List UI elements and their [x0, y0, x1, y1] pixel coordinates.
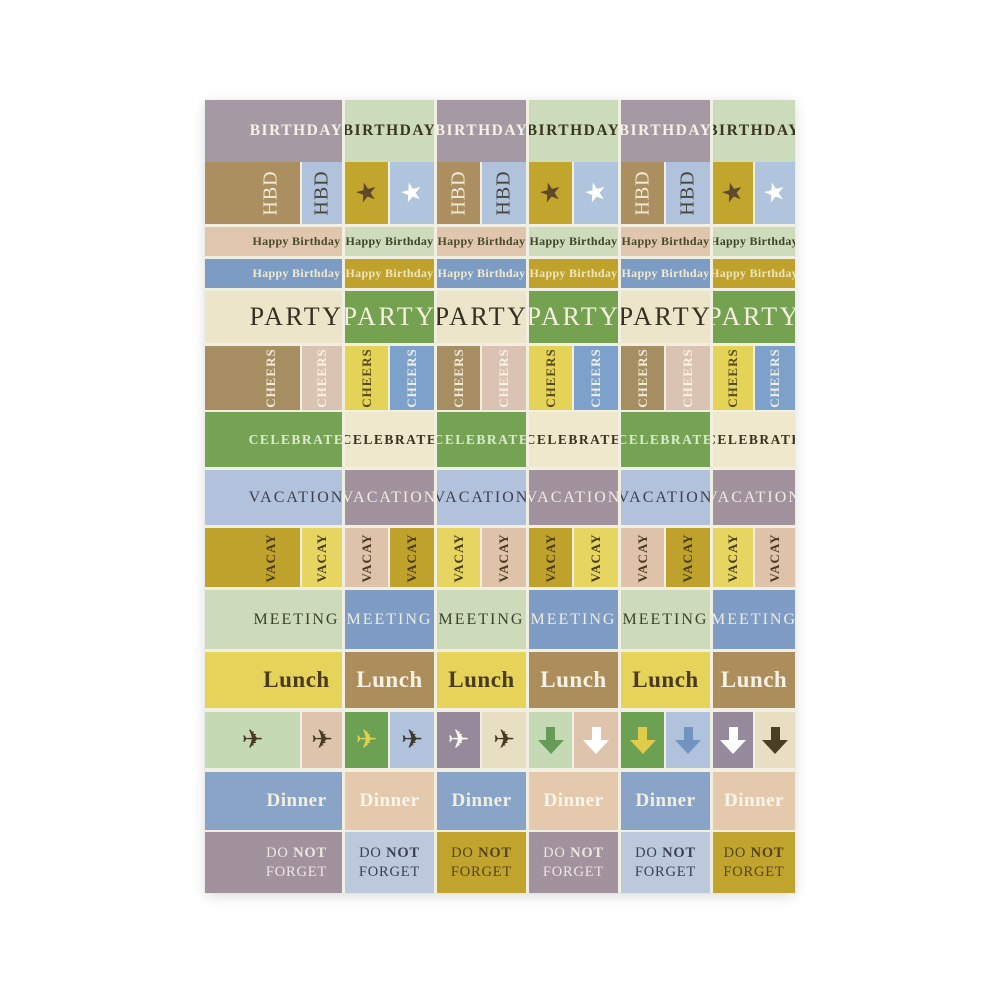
- vacay-label: VACAY: [635, 533, 651, 582]
- star-icon: ★: [760, 177, 789, 208]
- cheers-sticker: CHEERS: [345, 346, 388, 410]
- vacay-label: VACAY: [314, 533, 330, 582]
- hbd-label: HBD: [493, 170, 516, 215]
- happy-birthday-1-label: Happy Birthday: [713, 234, 795, 249]
- party-sticker: PARTY: [345, 291, 434, 343]
- airplane-icon: ✈: [401, 727, 423, 753]
- do-not-forget-label: DO NOTFORGET: [723, 844, 784, 882]
- happy-birthday-1-sticker: Happy Birthday: [437, 227, 526, 256]
- do-not-forget-sticker: DO NOTFORGET: [621, 832, 710, 893]
- lunch-sticker: Lunch: [205, 652, 342, 708]
- happy-birthday-2-label: Happy Birthday: [622, 266, 710, 281]
- cheers-label: CHEERS: [680, 348, 696, 407]
- birthday-sticker: BIRTHDAY: [205, 100, 342, 162]
- birthday-sticker: BIRTHDAY: [437, 100, 526, 162]
- lunch-label: Lunch: [721, 667, 787, 693]
- cheers-sticker: CHEERS: [302, 346, 342, 410]
- cheers-label: CHEERS: [543, 348, 559, 407]
- lunch-label: Lunch: [632, 667, 698, 693]
- happy-birthday-2-label: Happy Birthday: [713, 266, 795, 281]
- cheers-label: CHEERS: [496, 348, 512, 407]
- happy-birthday-2-sticker: Happy Birthday: [437, 259, 526, 288]
- down-arrow-icon: [538, 727, 564, 754]
- dinner-label: Dinner: [724, 790, 784, 812]
- meeting-sticker: MEETING: [437, 590, 526, 649]
- meeting-sticker: MEETING: [621, 590, 710, 649]
- cheers-label: CHEERS: [635, 348, 651, 407]
- cheers-sticker: CHEERS: [621, 346, 664, 410]
- do-not-forget-label: DO NOTFORGET: [451, 844, 512, 882]
- celebrate-label: CELEBRATE: [621, 432, 710, 448]
- down-arrow-sticker: [666, 712, 710, 768]
- cheers-sticker: CHEERS: [437, 346, 480, 410]
- cheers-row: CHEERSCHEERSCHEERSCHEERSCHEERSCHEERSCHEE…: [205, 346, 795, 410]
- birthday-label: BIRTHDAY: [250, 122, 342, 140]
- do-not-forget-sticker: DO NOTFORGET: [713, 832, 795, 893]
- do-not-forget-label: DO NOTFORGET: [266, 844, 327, 882]
- vacation-row: VACATIONVACATIONVACATIONVACATIONVACATION…: [205, 470, 795, 525]
- meeting-sticker: MEETING: [713, 590, 795, 649]
- happy-birthday-2-label: Happy Birthday: [253, 266, 341, 281]
- celebrate-row: CELEBRATECELEBRATECELEBRATECELEBRATECELE…: [205, 412, 795, 467]
- cheers-sticker: CHEERS: [529, 346, 572, 410]
- vacay-label: VACAY: [404, 533, 420, 582]
- do-not-forget-label: DO NOTFORGET: [359, 844, 420, 882]
- forget-text: FORGET: [359, 863, 420, 882]
- vacay-label: VACAY: [588, 533, 604, 582]
- cheers-sticker: CHEERS: [390, 346, 434, 410]
- meeting-label: MEETING: [347, 611, 433, 629]
- star-icon: ★: [397, 177, 426, 208]
- happy-birthday-1-label: Happy Birthday: [622, 234, 710, 249]
- vacay-sticker: VACAY: [205, 528, 300, 587]
- meeting-label: MEETING: [254, 611, 340, 629]
- forget-text: FORGET: [451, 863, 512, 882]
- airplane-icon: ✈: [356, 727, 378, 753]
- happy-birthday-1-sticker: Happy Birthday: [345, 227, 434, 256]
- vacay-sticker: VACAY: [390, 528, 434, 587]
- down-arrow-icon: [583, 727, 609, 754]
- star-sticker: ★: [574, 162, 618, 224]
- vacay-label: VACAY: [767, 533, 783, 582]
- vacation-label: VACATION: [437, 489, 526, 507]
- cheers-sticker: CHEERS: [482, 346, 526, 410]
- dinner-sticker: Dinner: [529, 772, 618, 830]
- party-label: PARTY: [713, 302, 795, 332]
- birthday-label: BIRTHDAY: [437, 122, 526, 140]
- happy-birthday-2-sticker: Happy Birthday: [713, 259, 795, 288]
- airplane-icon: ✈: [493, 727, 515, 753]
- down-arrow-sticker: [529, 712, 572, 768]
- hbd-label: HBD: [677, 170, 700, 215]
- party-row: PARTYPARTYPARTYPARTYPARTYPARTY: [205, 291, 795, 343]
- down-arrow-sticker: [574, 712, 618, 768]
- celebrate-label: CELEBRATE: [713, 432, 795, 448]
- vacay-row: VACAYVACAYVACAYVACAYVACAYVACAYVACAYVACAY…: [205, 528, 795, 587]
- vacation-sticker: VACATION: [437, 470, 526, 525]
- celebrate-sticker: CELEBRATE: [437, 412, 526, 467]
- vacay-sticker: VACAY: [666, 528, 710, 587]
- airplane-icon: ✈: [448, 727, 470, 753]
- cheers-label: CHEERS: [451, 348, 467, 407]
- forget-text: FORGET: [723, 863, 784, 882]
- lunch-sticker: Lunch: [621, 652, 710, 708]
- do-text: DO: [359, 845, 386, 861]
- vacay-sticker: VACAY: [437, 528, 480, 587]
- vacation-label: VACATION: [249, 489, 342, 507]
- not-text: NOT: [662, 845, 696, 861]
- do-not-forget-label: DO NOTFORGET: [543, 844, 604, 882]
- down-arrow-sticker: [713, 712, 753, 768]
- down-arrow-icon: [630, 727, 656, 754]
- birthday-sticker: BIRTHDAY: [529, 100, 618, 162]
- celebrate-label: CELEBRATE: [437, 432, 526, 448]
- dinner-sticker: Dinner: [345, 772, 434, 830]
- cheers-label: CHEERS: [263, 348, 279, 407]
- dinner-label: Dinner: [360, 790, 420, 812]
- down-arrow-icon: [675, 727, 701, 754]
- birthday-label: BIRTHDAY: [529, 122, 618, 140]
- vacay-sticker: VACAY: [482, 528, 526, 587]
- product-photo-background: { "page": { "bg": "#ffffff" }, "sheet": …: [0, 0, 1000, 1000]
- hbd-sticker: HBD: [437, 162, 480, 224]
- party-sticker: PARTY: [621, 291, 710, 343]
- happy-birthday-1-sticker: Happy Birthday: [621, 227, 710, 256]
- down-arrow-sticker: [621, 712, 664, 768]
- lunch-label: Lunch: [263, 667, 329, 693]
- happy-birthday-1-sticker: Happy Birthday: [205, 227, 342, 256]
- hbd-row: HBDHBD★★HBDHBD★★HBDHBD★★: [205, 162, 795, 224]
- lunch-sticker: Lunch: [529, 652, 618, 708]
- cheers-label: CHEERS: [725, 348, 741, 407]
- meeting-sticker: MEETING: [205, 590, 342, 649]
- birthday-sticker: BIRTHDAY: [713, 100, 795, 162]
- happy-birthday-1-label: Happy Birthday: [530, 234, 618, 249]
- hbd-label: HBD: [311, 170, 334, 215]
- lunch-sticker: Lunch: [437, 652, 526, 708]
- happy-birthday-2-sticker: Happy Birthday: [529, 259, 618, 288]
- happy-birthday-2-row: Happy BirthdayHappy BirthdayHappy Birthd…: [205, 259, 795, 288]
- vacay-sticker: VACAY: [755, 528, 795, 587]
- airplane-sticker: ✈: [482, 712, 526, 768]
- meeting-sticker: MEETING: [529, 590, 618, 649]
- star-icon: ★: [536, 177, 565, 208]
- party-label: PARTY: [250, 302, 342, 332]
- do-text: DO: [266, 845, 293, 861]
- lunch-sticker: Lunch: [345, 652, 434, 708]
- celebrate-sticker: CELEBRATE: [205, 412, 342, 467]
- hbd-label: HBD: [259, 170, 282, 215]
- dinner-sticker: Dinner: [621, 772, 710, 830]
- happy-birthday-1-sticker: Happy Birthday: [713, 227, 795, 256]
- star-sticker: ★: [713, 162, 753, 224]
- vacay-sticker: VACAY: [574, 528, 618, 587]
- celebrate-label: CELEBRATE: [249, 432, 342, 448]
- celebrate-sticker: CELEBRATE: [713, 412, 795, 467]
- do-not-forget-sticker: DO NOTFORGET: [437, 832, 526, 893]
- vacation-label: VACATION: [621, 489, 710, 507]
- vacation-label: VACATION: [529, 489, 618, 507]
- cheers-sticker: CHEERS: [205, 346, 300, 410]
- dinner-label: Dinner: [544, 790, 604, 812]
- party-sticker: PARTY: [713, 291, 795, 343]
- meeting-sticker: MEETING: [345, 590, 434, 649]
- forget-text: FORGET: [635, 863, 696, 882]
- vacation-sticker: VACATION: [345, 470, 434, 525]
- dinner-label: Dinner: [267, 790, 327, 812]
- happy-birthday-2-label: Happy Birthday: [346, 266, 434, 281]
- hbd-sticker: HBD: [482, 162, 526, 224]
- vacay-label: VACAY: [725, 533, 741, 582]
- party-label: PARTY: [529, 302, 618, 332]
- happy-birthday-2-sticker: Happy Birthday: [621, 259, 710, 288]
- happy-birthday-1-label: Happy Birthday: [253, 234, 341, 249]
- do-not-forget-label: DO NOTFORGET: [635, 844, 696, 882]
- party-sticker: PARTY: [529, 291, 618, 343]
- vacation-sticker: VACATION: [621, 470, 710, 525]
- hbd-sticker: HBD: [621, 162, 664, 224]
- cheers-label: CHEERS: [588, 348, 604, 407]
- hbd-sticker: HBD: [205, 162, 300, 224]
- hbd-sticker: HBD: [666, 162, 710, 224]
- forget-text: FORGET: [266, 863, 327, 882]
- vacay-sticker: VACAY: [621, 528, 664, 587]
- forget-text: FORGET: [543, 863, 604, 882]
- happy-birthday-1-sticker: Happy Birthday: [529, 227, 618, 256]
- hbd-label: HBD: [631, 170, 654, 215]
- travel-icons-row: ✈✈✈✈✈✈: [205, 712, 795, 768]
- vacay-label: VACAY: [359, 533, 375, 582]
- vacay-label: VACAY: [680, 533, 696, 582]
- hbd-label: HBD: [447, 170, 470, 215]
- vacay-label: VACAY: [263, 533, 279, 582]
- lunch-sticker: Lunch: [713, 652, 795, 708]
- sticker-sheet: BIRTHDAYBIRTHDAYBIRTHDAYBIRTHDAYBIRTHDAY…: [205, 100, 795, 893]
- dinner-row: DinnerDinnerDinnerDinnerDinnerDinner: [205, 772, 795, 830]
- birthday-label: BIRTHDAY: [713, 122, 795, 140]
- down-arrow-icon: [762, 727, 788, 754]
- happy-birthday-1-label: Happy Birthday: [346, 234, 434, 249]
- down-arrow-sticker: [755, 712, 795, 768]
- down-arrow-icon: [720, 727, 746, 754]
- airplane-icon: ✈: [311, 727, 333, 753]
- vacation-sticker: VACATION: [205, 470, 342, 525]
- dinner-label: Dinner: [636, 790, 696, 812]
- happy-birthday-2-sticker: Happy Birthday: [205, 259, 342, 288]
- do-text: DO: [543, 845, 570, 861]
- do-not-forget-sticker: DO NOTFORGET: [529, 832, 618, 893]
- cheers-sticker: CHEERS: [574, 346, 618, 410]
- cheers-label: CHEERS: [314, 348, 330, 407]
- meeting-label: MEETING: [531, 611, 617, 629]
- happy-birthday-2-sticker: Happy Birthday: [345, 259, 434, 288]
- meeting-label: MEETING: [623, 611, 709, 629]
- cheers-label: CHEERS: [359, 348, 375, 407]
- birthday-row: BIRTHDAYBIRTHDAYBIRTHDAYBIRTHDAYBIRTHDAY…: [205, 100, 795, 162]
- happy-birthday-1-row: Happy BirthdayHappy BirthdayHappy Birthd…: [205, 227, 795, 256]
- airplane-sticker: ✈: [437, 712, 480, 768]
- not-text: NOT: [570, 845, 604, 861]
- star-sticker: ★: [755, 162, 795, 224]
- vacation-label: VACATION: [345, 489, 434, 507]
- do-text: DO: [724, 845, 751, 861]
- airplane-icon: ✈: [242, 727, 264, 753]
- vacay-label: VACAY: [451, 533, 467, 582]
- do-text: DO: [451, 845, 478, 861]
- vacation-sticker: VACATION: [529, 470, 618, 525]
- star-icon: ★: [718, 177, 747, 208]
- vacay-sticker: VACAY: [529, 528, 572, 587]
- vacay-sticker: VACAY: [713, 528, 753, 587]
- cheers-sticker: CHEERS: [666, 346, 710, 410]
- lunch-label: Lunch: [356, 667, 422, 693]
- dinner-sticker: Dinner: [205, 772, 342, 830]
- cheers-sticker: CHEERS: [755, 346, 795, 410]
- celebrate-label: CELEBRATE: [345, 432, 434, 448]
- meeting-row: MEETINGMEETINGMEETINGMEETINGMEETINGMEETI…: [205, 590, 795, 649]
- party-sticker: PARTY: [205, 291, 342, 343]
- vacay-sticker: VACAY: [345, 528, 388, 587]
- meeting-label: MEETING: [439, 611, 525, 629]
- do-not-forget-row: DO NOTFORGETDO NOTFORGETDO NOTFORGETDO N…: [205, 832, 795, 893]
- cheers-label: CHEERS: [767, 348, 783, 407]
- birthday-label: BIRTHDAY: [345, 122, 434, 140]
- lunch-label: Lunch: [448, 667, 514, 693]
- lunch-label: Lunch: [540, 667, 606, 693]
- vacay-label: VACAY: [543, 533, 559, 582]
- star-sticker: ★: [345, 162, 388, 224]
- party-label: PARTY: [437, 302, 526, 332]
- cheers-label: CHEERS: [404, 348, 420, 407]
- vacation-sticker: VACATION: [713, 470, 795, 525]
- happy-birthday-2-label: Happy Birthday: [438, 266, 526, 281]
- star-icon: ★: [352, 177, 381, 208]
- dinner-sticker: Dinner: [713, 772, 795, 830]
- happy-birthday-2-label: Happy Birthday: [530, 266, 618, 281]
- not-text: NOT: [751, 845, 785, 861]
- happy-birthday-1-label: Happy Birthday: [438, 234, 526, 249]
- cheers-sticker: CHEERS: [713, 346, 753, 410]
- birthday-sticker: BIRTHDAY: [345, 100, 434, 162]
- not-text: NOT: [386, 845, 420, 861]
- hbd-sticker: HBD: [302, 162, 342, 224]
- party-label: PARTY: [621, 302, 710, 332]
- star-icon: ★: [581, 177, 610, 208]
- not-text: NOT: [293, 845, 327, 861]
- celebrate-sticker: CELEBRATE: [345, 412, 434, 467]
- star-sticker: ★: [390, 162, 434, 224]
- airplane-sticker: ✈: [390, 712, 434, 768]
- meeting-label: MEETING: [713, 611, 795, 629]
- lunch-row: LunchLunchLunchLunchLunchLunch: [205, 652, 795, 708]
- dinner-label: Dinner: [452, 790, 512, 812]
- airplane-sticker: ✈: [345, 712, 388, 768]
- do-not-forget-sticker: DO NOTFORGET: [345, 832, 434, 893]
- do-text: DO: [635, 845, 662, 861]
- celebrate-label: CELEBRATE: [529, 432, 618, 448]
- celebrate-sticker: CELEBRATE: [529, 412, 618, 467]
- vacay-sticker: VACAY: [302, 528, 342, 587]
- dinner-sticker: Dinner: [437, 772, 526, 830]
- not-text: NOT: [478, 845, 512, 861]
- party-label: PARTY: [345, 302, 434, 332]
- birthday-sticker: BIRTHDAY: [621, 100, 710, 162]
- celebrate-sticker: CELEBRATE: [621, 412, 710, 467]
- birthday-label: BIRTHDAY: [621, 122, 710, 140]
- party-sticker: PARTY: [437, 291, 526, 343]
- airplane-sticker: ✈: [302, 712, 342, 768]
- do-not-forget-sticker: DO NOTFORGET: [205, 832, 342, 893]
- airplane-sticker: ✈: [205, 712, 300, 768]
- vacay-label: VACAY: [496, 533, 512, 582]
- star-sticker: ★: [529, 162, 572, 224]
- vacation-label: VACATION: [713, 489, 795, 507]
